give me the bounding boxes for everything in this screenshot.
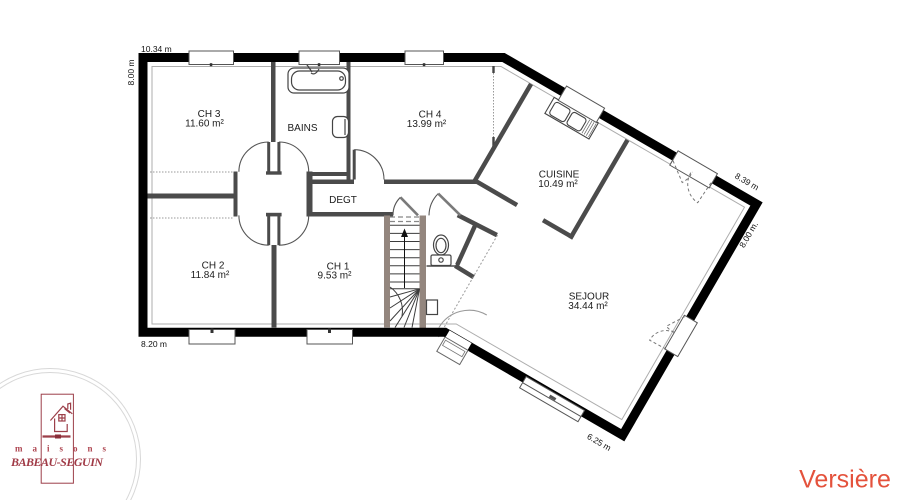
svg-text:9.53 m²: 9.53 m² bbox=[318, 271, 353, 282]
svg-text:BABEAU-SEGUIN: BABEAU-SEGUIN bbox=[10, 455, 104, 469]
svg-text:10.34 m: 10.34 m bbox=[141, 44, 172, 54]
svg-text:maisons: maisons bbox=[15, 444, 116, 454]
svg-text:13.99 m²: 13.99 m² bbox=[407, 119, 447, 130]
svg-text:10.49 m²: 10.49 m² bbox=[538, 179, 578, 190]
svg-text:34.44 m²: 34.44 m² bbox=[568, 301, 608, 312]
svg-text:BAINS: BAINS bbox=[287, 123, 317, 134]
svg-text:6.25 m: 6.25 m bbox=[585, 431, 613, 453]
svg-text:11.60 m²: 11.60 m² bbox=[185, 119, 224, 130]
svg-text:8.00 m: 8.00 m bbox=[126, 60, 136, 86]
svg-text:8.20 m: 8.20 m bbox=[141, 339, 167, 349]
svg-text:11.84 m²: 11.84 m² bbox=[191, 270, 230, 281]
svg-text:DEGT: DEGT bbox=[329, 195, 357, 206]
svg-text:Versière: Versière bbox=[799, 466, 891, 494]
